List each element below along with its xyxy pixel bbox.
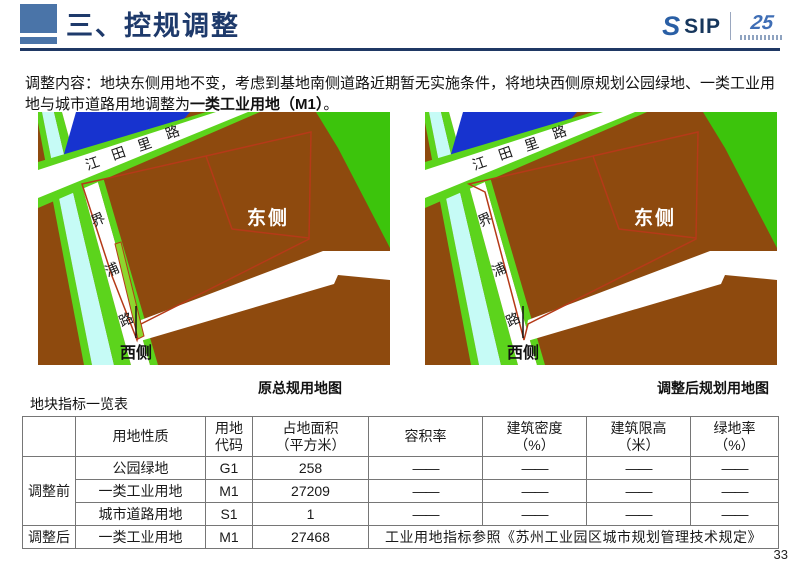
intro-lead: 调整内容：地块东侧用地不变，考虑到基地南侧道路近期暂无实施条件，将地块西侧原规划… xyxy=(25,75,775,113)
intro-emphasis: 一类工业用地（M1） xyxy=(190,96,323,113)
west-side-label: 西侧 xyxy=(507,343,539,362)
cell: —— xyxy=(483,503,587,526)
group-label-after: 调整后 xyxy=(23,526,76,549)
anniversary-25: 25 xyxy=(749,13,774,33)
title-accent-square xyxy=(20,4,57,33)
cell: —— xyxy=(369,480,483,503)
table-header-row: 用地性质 用地代码 占地面积（平方米） 容积率 建筑密度（%） 建筑限高（米） … xyxy=(23,417,779,457)
adjustment-description: 调整内容：地块东侧用地不变，考虑到基地南侧道路近期暂无实施条件，将地块西侧原规划… xyxy=(25,73,777,115)
cell: 一类工业用地 xyxy=(76,480,206,503)
table-row: 调整前 公园绿地 G1 258 —— —— —— —— xyxy=(23,457,779,480)
header-cell-density: 建筑密度（%） xyxy=(483,417,587,457)
cell: 一类工业用地 xyxy=(76,526,206,549)
table-title: 地块指标一览表 xyxy=(30,394,128,414)
table-row: 城市道路用地 S1 1 —— —— —— —— xyxy=(23,503,779,526)
group-label-before: 调整前 xyxy=(23,457,76,526)
header-cell-code: 用地代码 xyxy=(206,417,253,457)
cell: 258 xyxy=(253,457,369,480)
page-title: 三、控规调整 xyxy=(66,4,240,43)
sip-swirl-icon: S xyxy=(662,13,680,40)
logo-divider xyxy=(730,12,731,40)
header-cell-height-limit: 建筑限高（米） xyxy=(587,417,691,457)
cell: 1 xyxy=(253,503,369,526)
cell: M1 xyxy=(206,480,253,503)
cell: 城市道路用地 xyxy=(76,503,206,526)
cell: 公园绿地 xyxy=(76,457,206,480)
cell-adjusted-area: 27468 xyxy=(253,526,369,549)
cell: 27209 xyxy=(253,480,369,503)
cell: —— xyxy=(369,457,483,480)
caption-original-map: 原总规用地图 xyxy=(200,378,400,398)
table-row-after: 调整后 一类工业用地 M1 27468 工业用地指标参照《苏州工业园区城市规划管… xyxy=(23,526,779,549)
indicator-table: 用地性质 用地代码 占地面积（平方米） 容积率 建筑密度（%） 建筑限高（米） … xyxy=(22,416,779,549)
cell: —— xyxy=(691,480,779,503)
cell: —— xyxy=(483,457,587,480)
east-side-label: 东侧 xyxy=(634,206,676,229)
sip-logo: S SIP 25 xyxy=(662,8,784,44)
regulation-note: 工业用地指标参照《苏州工业园区城市规划管理技术规定》 xyxy=(369,526,779,549)
anniversary-subtext xyxy=(740,35,784,40)
header-cell-area: 占地面积（平方米） xyxy=(253,417,369,457)
header-cell-far: 容积率 xyxy=(369,417,483,457)
cell: S1 xyxy=(206,503,253,526)
slide: 三、控规调整 S SIP 25 调整内容：地块东侧用地不变，考虑到基地南侧道路近… xyxy=(0,0,800,565)
title-accent-bar xyxy=(20,37,57,44)
map-original-plan: 西侧 东侧 江 田 里 路 界 浦 路 xyxy=(38,112,390,365)
map-adjusted-plan: 西侧 东侧 江 田 里 路 界 浦 路 xyxy=(425,112,777,365)
cell: M1 xyxy=(206,526,253,549)
page-number: 33 xyxy=(774,547,788,562)
cell: —— xyxy=(587,480,691,503)
cell: —— xyxy=(369,503,483,526)
caption-adjusted-map: 调整后规划用地图 xyxy=(613,378,800,398)
intro-period: 。 xyxy=(323,96,338,113)
table-row: 一类工业用地 M1 27209 —— —— —— —— xyxy=(23,480,779,503)
cell: G1 xyxy=(206,457,253,480)
header-cell-land-use: 用地性质 xyxy=(76,417,206,457)
cell: —— xyxy=(691,457,779,480)
header-rule xyxy=(20,48,780,51)
cell: —— xyxy=(587,457,691,480)
sip-logo-text: SIP xyxy=(684,16,721,37)
west-side-label: 西侧 xyxy=(120,343,152,362)
header-cell-green-rate: 绿地率（%） xyxy=(691,417,779,457)
cell: —— xyxy=(587,503,691,526)
east-side-label: 东侧 xyxy=(247,206,289,229)
cell: —— xyxy=(691,503,779,526)
header-cell-empty xyxy=(23,417,76,457)
cell: —— xyxy=(483,480,587,503)
anniversary-mark: 25 xyxy=(740,13,784,40)
